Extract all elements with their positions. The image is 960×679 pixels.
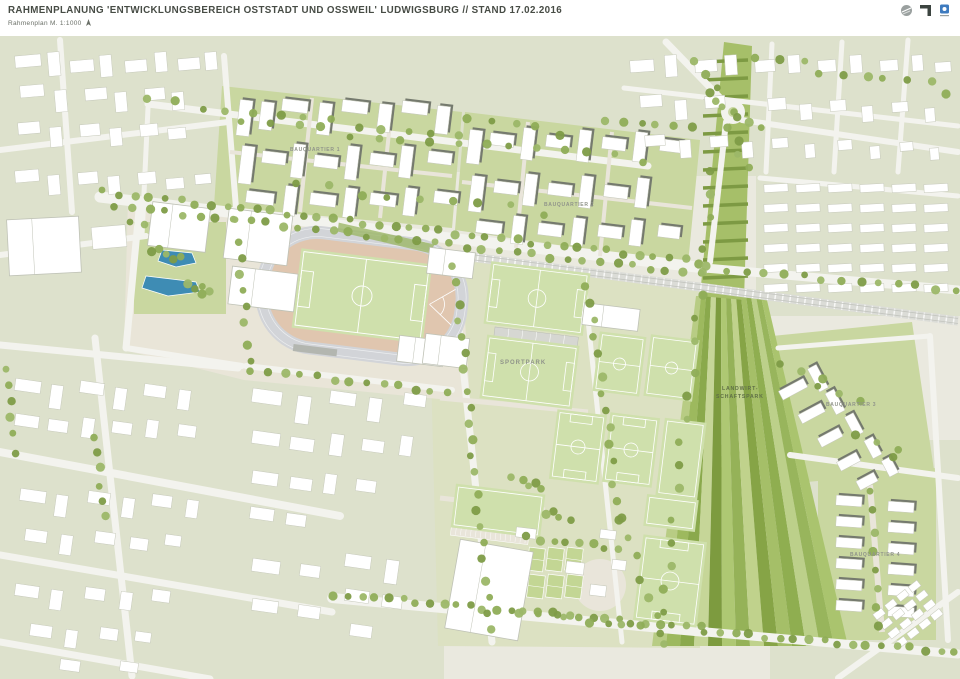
building <box>630 59 655 73</box>
tree <box>594 349 602 357</box>
building <box>125 59 148 73</box>
tree <box>575 614 583 622</box>
tree <box>452 278 460 286</box>
tree <box>162 195 169 202</box>
tree <box>232 216 239 223</box>
building <box>166 177 185 190</box>
building <box>796 263 820 272</box>
tree <box>477 554 485 562</box>
building <box>925 108 936 123</box>
tree <box>701 70 710 79</box>
tree <box>171 96 180 105</box>
tree <box>633 552 641 560</box>
tree <box>300 212 308 220</box>
tree <box>394 381 402 389</box>
tree <box>555 131 564 140</box>
tree <box>779 269 788 278</box>
tree <box>115 192 123 200</box>
building <box>911 55 923 72</box>
tree <box>381 380 389 388</box>
tree <box>243 303 251 311</box>
tree <box>745 164 753 172</box>
building <box>121 497 136 518</box>
building <box>177 389 192 410</box>
tree <box>941 89 950 98</box>
building <box>78 171 99 185</box>
building <box>99 627 118 641</box>
tree <box>871 529 879 537</box>
tree <box>540 211 548 219</box>
tree <box>590 245 597 252</box>
building <box>85 87 108 101</box>
tree <box>682 391 691 400</box>
building <box>772 137 789 148</box>
building <box>565 561 584 575</box>
tree <box>264 368 272 376</box>
building <box>724 55 737 76</box>
tree <box>851 430 860 439</box>
tree <box>619 118 628 127</box>
tree <box>743 268 751 276</box>
building <box>710 135 729 147</box>
tree <box>953 287 960 294</box>
tree <box>578 257 586 265</box>
tree <box>712 97 720 105</box>
building <box>70 59 95 73</box>
tree <box>660 267 668 275</box>
tree <box>775 55 784 64</box>
tree <box>480 539 488 547</box>
tree <box>452 601 459 608</box>
tree <box>396 136 404 144</box>
building <box>47 175 61 196</box>
new-building <box>836 577 865 591</box>
tree <box>939 648 946 655</box>
tree <box>911 280 919 288</box>
masterplan-map: BAUQUARTIER 1 BAUQUARTIER 2 BAUQUARTIER … <box>0 36 960 679</box>
tree <box>602 407 610 415</box>
north-arrow-icon <box>85 19 92 28</box>
tree <box>456 300 465 309</box>
building <box>15 54 42 68</box>
tree <box>177 253 185 261</box>
tree <box>127 219 134 226</box>
building <box>355 479 376 494</box>
tree <box>605 620 612 627</box>
tree <box>471 468 479 476</box>
tree <box>950 648 958 656</box>
tree <box>601 117 609 125</box>
building <box>892 223 916 232</box>
building <box>900 142 914 152</box>
label-bauquartier-1: BAUQUARTIER 1 <box>290 147 340 153</box>
tree <box>200 106 207 113</box>
tree <box>458 333 466 341</box>
tree <box>691 315 698 322</box>
tree <box>698 291 707 300</box>
tree <box>426 388 433 395</box>
title-block: RAHMENPLANUNG 'ENTWICKLUNGSBEREICH OSTST… <box>0 0 960 36</box>
building <box>838 140 853 151</box>
building <box>7 216 82 276</box>
tree <box>542 510 551 519</box>
building <box>805 144 816 159</box>
tree <box>464 388 471 395</box>
tree <box>316 122 325 131</box>
new-building <box>836 598 865 612</box>
building <box>64 629 78 648</box>
building <box>168 127 187 140</box>
tree <box>895 280 903 288</box>
tree <box>839 71 847 79</box>
building <box>151 589 170 603</box>
tree <box>744 629 753 638</box>
tree <box>635 576 643 584</box>
tree <box>12 450 20 458</box>
building <box>892 183 916 192</box>
tree <box>476 245 485 254</box>
tree <box>864 72 873 81</box>
tree <box>248 217 256 225</box>
tree <box>487 625 495 633</box>
plan-sheet: RAHMENPLANUNG 'ENTWICKLUNGSBEREICH OSTST… <box>0 0 960 679</box>
sports-field <box>643 334 699 402</box>
building <box>15 169 40 183</box>
tree <box>636 621 644 629</box>
tree <box>684 416 691 423</box>
blue-square-logo <box>939 4 950 18</box>
building <box>134 631 151 643</box>
tree <box>425 137 434 146</box>
tree <box>894 446 902 454</box>
tree <box>878 642 885 649</box>
logo-group <box>900 4 950 18</box>
tree <box>392 222 401 231</box>
allotment-row <box>703 222 748 224</box>
tree <box>221 107 229 115</box>
tree <box>874 585 882 593</box>
tree <box>905 642 913 650</box>
tree <box>345 593 352 600</box>
new-building <box>836 493 865 507</box>
building <box>91 225 127 250</box>
tennis-court <box>546 574 565 599</box>
tree <box>141 221 149 229</box>
tree <box>238 254 246 262</box>
tree <box>481 577 490 586</box>
tree <box>445 239 453 247</box>
tree <box>489 118 496 125</box>
tree <box>627 620 635 628</box>
building <box>164 534 181 547</box>
tree <box>531 122 539 130</box>
tree <box>482 139 491 148</box>
tree <box>405 224 412 231</box>
building <box>755 59 776 72</box>
tree <box>669 122 677 130</box>
tree <box>610 458 617 465</box>
tree <box>96 463 105 472</box>
tree <box>375 221 383 229</box>
building <box>114 92 128 113</box>
building <box>924 243 948 252</box>
label-bauquartier-3: BAUQUARTIER 3 <box>826 402 876 408</box>
tree <box>312 213 320 221</box>
building <box>329 433 345 457</box>
tree <box>647 266 655 274</box>
building <box>674 100 687 121</box>
building <box>924 223 948 232</box>
building <box>892 243 916 252</box>
allotment-row <box>703 276 748 278</box>
tree <box>363 379 370 386</box>
tree <box>522 532 530 540</box>
building <box>399 435 414 456</box>
tree <box>635 251 644 260</box>
tree <box>161 207 168 214</box>
building <box>679 140 691 159</box>
tree <box>734 136 743 145</box>
tree <box>618 621 626 629</box>
tree <box>668 539 676 547</box>
building <box>828 203 852 212</box>
building <box>764 283 788 292</box>
tree <box>651 121 659 129</box>
tree <box>426 599 434 607</box>
tree <box>714 84 721 91</box>
tree <box>815 70 823 78</box>
building <box>49 127 63 148</box>
tree <box>330 226 338 234</box>
tree <box>581 282 589 290</box>
tree <box>469 232 476 239</box>
tree <box>804 635 813 644</box>
tree <box>384 593 393 602</box>
building <box>830 99 847 111</box>
sports-field <box>633 534 707 627</box>
tree <box>483 610 491 618</box>
building <box>935 61 952 72</box>
tree <box>347 216 354 223</box>
tree <box>432 238 439 245</box>
tree <box>401 595 408 602</box>
tree <box>284 212 291 219</box>
building <box>796 203 820 212</box>
building <box>47 52 61 77</box>
tree <box>649 253 656 260</box>
building <box>828 183 852 192</box>
tree <box>296 371 303 378</box>
tree <box>110 203 118 211</box>
tree <box>132 192 140 200</box>
tree <box>723 268 730 275</box>
tree <box>514 609 523 618</box>
tree <box>698 245 706 253</box>
tree <box>328 591 337 600</box>
tree <box>719 103 726 110</box>
tree <box>279 222 288 231</box>
building <box>892 101 909 112</box>
tree <box>505 143 512 150</box>
tree <box>706 167 714 175</box>
building <box>828 263 852 272</box>
tree <box>931 285 940 294</box>
building <box>18 121 41 135</box>
tree <box>449 197 457 205</box>
tree <box>582 147 591 156</box>
new-building <box>888 562 917 576</box>
tree <box>801 271 808 278</box>
building <box>151 494 172 509</box>
tree <box>169 255 177 263</box>
label-landwirtschaftspark-1: LANDWIRT- <box>722 386 758 392</box>
tree <box>875 279 882 286</box>
building <box>860 183 884 192</box>
tree <box>225 203 232 210</box>
tree <box>178 196 186 204</box>
tree <box>619 250 627 258</box>
building <box>129 537 148 551</box>
tree <box>486 594 493 601</box>
building <box>796 183 820 192</box>
tree <box>497 234 505 242</box>
tree <box>734 151 741 158</box>
tree <box>801 58 808 65</box>
tree <box>416 196 424 204</box>
tree <box>474 490 482 498</box>
tree <box>536 536 545 545</box>
tree <box>471 506 480 515</box>
tree <box>191 285 199 293</box>
building <box>119 661 138 673</box>
plan-title: RAHMENPLANUNG 'ENTWICKLUNGSBEREICH OSTST… <box>8 4 562 16</box>
tree <box>473 198 482 207</box>
tree <box>9 430 16 437</box>
tree <box>246 367 254 375</box>
tree <box>294 225 301 232</box>
building <box>59 534 74 555</box>
tree <box>560 242 568 250</box>
tree <box>814 383 821 390</box>
tree <box>300 114 307 121</box>
tree <box>544 241 552 249</box>
building <box>299 564 320 579</box>
tree <box>441 599 450 608</box>
tree <box>190 201 198 209</box>
tree <box>235 238 243 246</box>
stadium-pitch <box>292 248 433 343</box>
tree <box>707 214 714 221</box>
building <box>111 421 132 436</box>
tree <box>448 262 456 270</box>
tree <box>629 261 636 268</box>
tree <box>465 420 473 428</box>
tree <box>691 369 699 377</box>
label-bauquartier-2: BAUQUARTIER 2 <box>544 202 594 208</box>
building <box>764 223 788 232</box>
tree <box>434 225 442 233</box>
tree <box>656 620 665 629</box>
tree <box>675 438 683 446</box>
tree <box>147 247 156 256</box>
tree <box>745 118 754 127</box>
tree <box>199 283 206 290</box>
tree <box>585 299 594 308</box>
building <box>445 539 534 640</box>
building <box>768 97 787 110</box>
tree <box>243 341 252 350</box>
tree <box>833 641 841 649</box>
tree <box>733 113 741 121</box>
tree <box>561 538 569 546</box>
tree <box>759 269 767 277</box>
tennis-court <box>546 547 565 572</box>
tree <box>835 390 843 398</box>
tree <box>253 205 261 213</box>
tree <box>615 545 623 553</box>
tree <box>296 121 304 129</box>
building <box>924 203 948 212</box>
tree <box>235 270 244 279</box>
tree <box>535 611 542 618</box>
building <box>860 263 884 272</box>
label-bauquartier-4: BAUQUARTIER 4 <box>850 552 900 558</box>
building <box>109 128 123 147</box>
tree <box>383 194 390 201</box>
building <box>145 419 159 438</box>
tree <box>675 484 684 493</box>
tree <box>444 389 452 397</box>
tree <box>237 204 245 212</box>
new-building <box>836 514 865 528</box>
building <box>796 243 820 252</box>
tree <box>688 122 697 131</box>
building <box>860 243 884 252</box>
building <box>664 55 678 78</box>
tree <box>639 159 647 167</box>
tree <box>96 483 103 490</box>
tree <box>266 205 275 214</box>
tree <box>639 120 646 127</box>
tree <box>598 372 607 381</box>
tree <box>554 611 562 619</box>
tree <box>552 538 559 545</box>
tree <box>411 599 419 607</box>
tree <box>344 377 353 386</box>
building <box>80 123 101 137</box>
tree <box>903 76 911 84</box>
tree <box>660 609 667 616</box>
plan-scale-text: Rahmenplan M. 1:1000 <box>8 20 82 27</box>
tree <box>683 622 691 630</box>
tree <box>603 245 611 253</box>
tree <box>355 123 363 131</box>
globe-logo <box>900 4 913 17</box>
tree <box>565 256 572 263</box>
building <box>323 473 338 494</box>
sports-field <box>593 331 647 396</box>
tree <box>567 516 575 524</box>
building <box>589 584 606 597</box>
tree <box>462 349 470 357</box>
tree <box>359 221 367 229</box>
tree <box>872 603 880 611</box>
tree <box>857 277 866 286</box>
tree <box>872 567 879 574</box>
tree <box>513 120 521 128</box>
tree <box>507 473 515 481</box>
tree <box>3 366 10 373</box>
